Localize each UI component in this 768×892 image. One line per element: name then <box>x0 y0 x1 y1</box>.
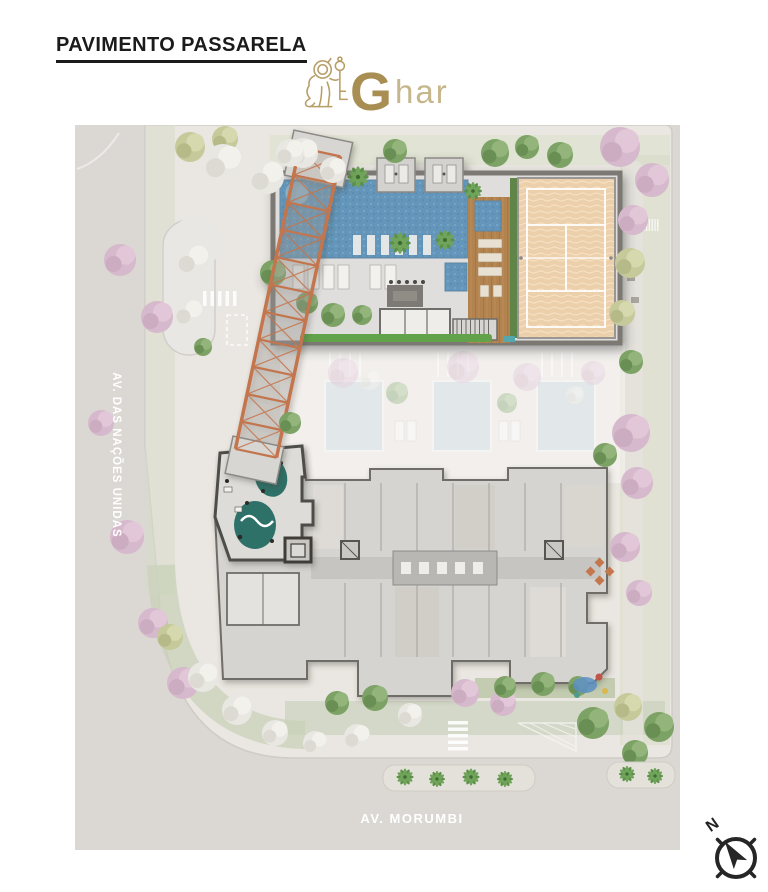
ground-garden <box>280 343 625 483</box>
left-wing-room <box>227 573 299 625</box>
small-pool <box>445 263 467 291</box>
elevator-core <box>393 551 497 585</box>
brand-rest: har <box>395 73 449 111</box>
plunge-pool <box>475 201 501 231</box>
compass-north-label: N <box>703 815 722 836</box>
vestibule <box>285 538 311 562</box>
lawn-strip <box>300 334 492 342</box>
compass: N <box>698 804 766 892</box>
street-label-bottom: AV. MORUMBI <box>360 811 463 826</box>
median-island <box>163 217 221 356</box>
brand-initial: G <box>350 71 392 114</box>
street-medians <box>383 762 675 791</box>
water-feature <box>503 336 515 342</box>
brand-logo: G har <box>300 54 449 114</box>
path-bench <box>631 297 639 303</box>
street-label-left: AV. DAS NAÇÕES UNIDAS <box>110 372 123 537</box>
page-title: PAVIMENTO PASSARELA <box>56 34 307 63</box>
hedge <box>510 178 518 338</box>
play-slide <box>573 677 597 693</box>
beach-tennis-court <box>518 178 615 338</box>
site-plan: AV. DAS NAÇÕES UNIDAS AV. MORUMBI <box>75 125 680 850</box>
